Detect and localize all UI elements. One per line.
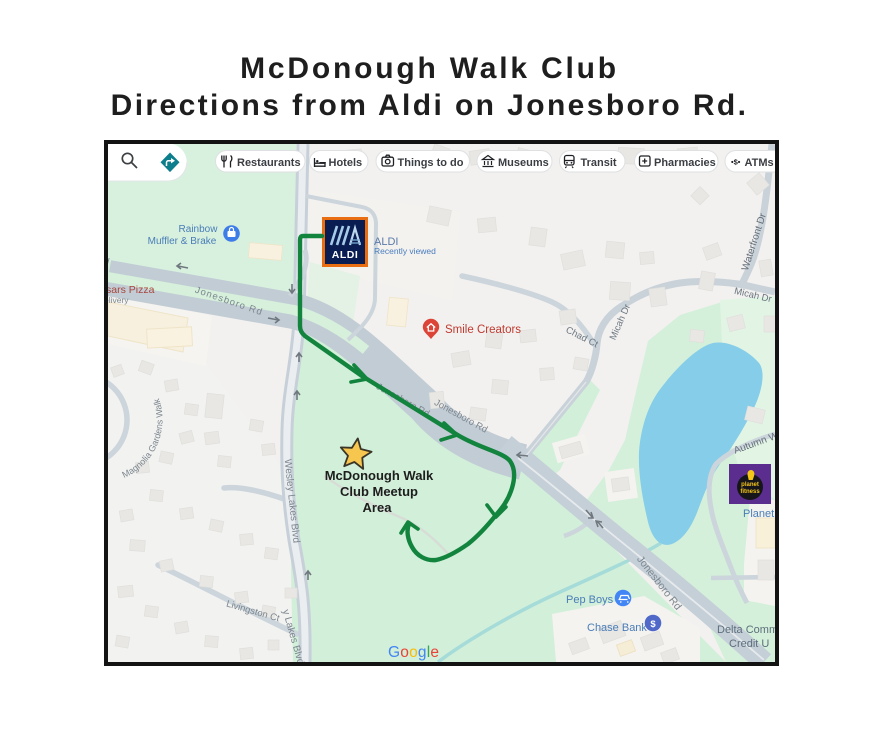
svg-text:planet: planet [741, 482, 759, 488]
svg-text:Rainbow: Rainbow [179, 224, 219, 235]
svg-text:•$•: •$• [731, 158, 741, 167]
svg-text:Chase Bank: Chase Bank [587, 622, 647, 634]
svg-text:Area: Area [363, 500, 393, 515]
svg-text:Smile Creators: Smile Creators [445, 324, 521, 336]
svg-text:Google: Google [388, 644, 439, 661]
svg-text:Pharmacies: Pharmacies [654, 157, 716, 169]
svg-text:Muffler & Brake: Muffler & Brake [148, 236, 217, 247]
svg-text:ALDI: ALDI [332, 249, 359, 261]
svg-text:Museums: Museums [498, 157, 549, 169]
svg-text:fitness: fitness [740, 489, 760, 495]
svg-text:Recently viewed: Recently viewed [374, 246, 436, 256]
svg-text:elivery: elivery [108, 295, 129, 305]
svg-text:Club Meetup: Club Meetup [340, 484, 418, 499]
svg-text:Delta Comm: Delta Comm [717, 624, 775, 636]
svg-text:Restaurants: Restaurants [237, 157, 301, 169]
svg-text:Hotels: Hotels [329, 157, 363, 169]
svg-text:Transit: Transit [581, 157, 617, 169]
svg-text:ATMs: ATMs [745, 157, 774, 169]
svg-text:Pep Boys: Pep Boys [566, 594, 614, 606]
svg-text:Planet: Planet [743, 508, 774, 520]
svg-text:Credit U: Credit U [729, 638, 769, 650]
svg-text:$: $ [650, 619, 656, 630]
svg-text:Things to do: Things to do [398, 157, 464, 169]
svg-text:McDonough Walk: McDonough Walk [325, 468, 434, 483]
